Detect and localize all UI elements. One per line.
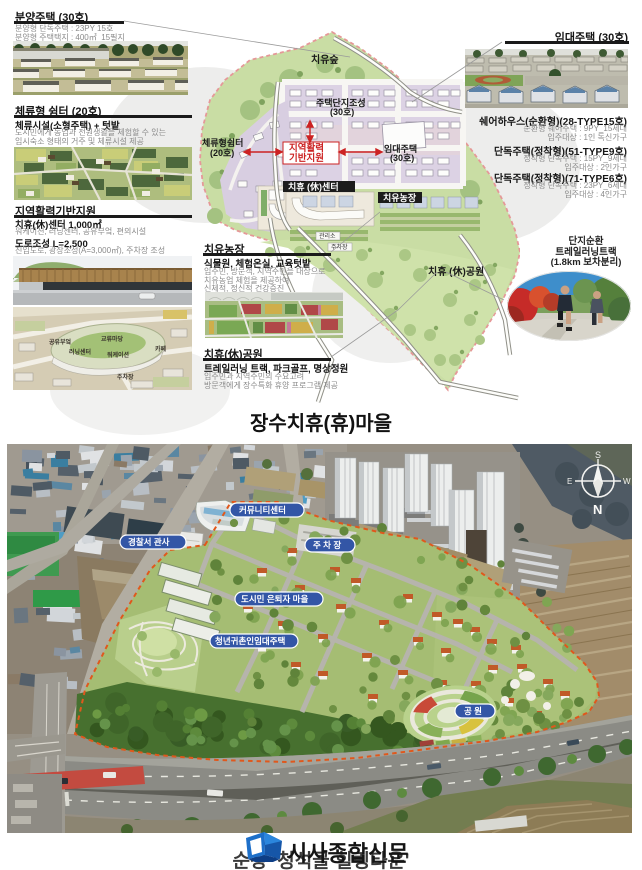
svg-text:S: S [595, 450, 601, 460]
svg-text:커뮤니티센터: 커뮤니티센터 [239, 505, 286, 515]
svg-text:공 원: 공 원 [464, 706, 482, 716]
svg-text:W: W [623, 477, 631, 486]
svg-text:청년귀촌인임대주택: 청년귀촌인임대주택 [215, 636, 286, 646]
svg-text:주 차 장: 주 차 장 [313, 540, 341, 550]
svg-text:도시민 은퇴자 마을: 도시민 은퇴자 마을 [241, 594, 308, 604]
svg-text:N: N [593, 502, 602, 517]
svg-text:경찰서 관사: 경찰서 관사 [128, 537, 170, 547]
svg-text:E: E [567, 477, 572, 486]
